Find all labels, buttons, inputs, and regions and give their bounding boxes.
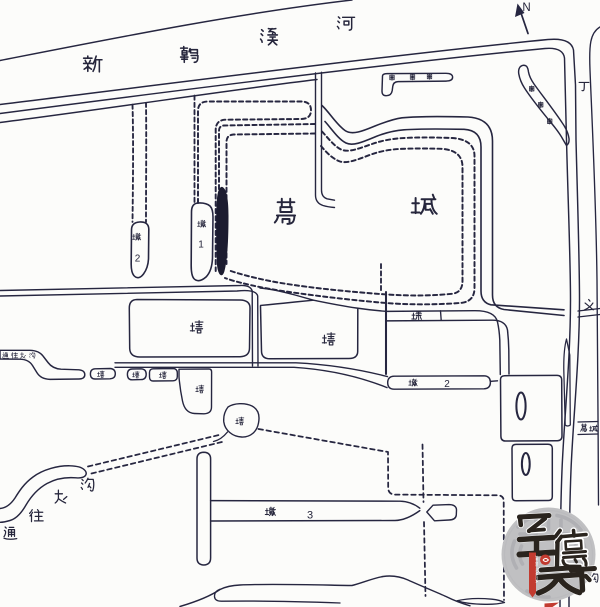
svg-text:1: 1 (198, 240, 204, 251)
svg-text:ZHIDE TIANXIA: ZHIDE TIANXIA (534, 556, 538, 584)
svg-text:N: N (522, 2, 530, 14)
svg-text:2: 2 (444, 379, 450, 390)
svg-text:2: 2 (135, 254, 141, 265)
svg-text:3: 3 (307, 510, 313, 522)
